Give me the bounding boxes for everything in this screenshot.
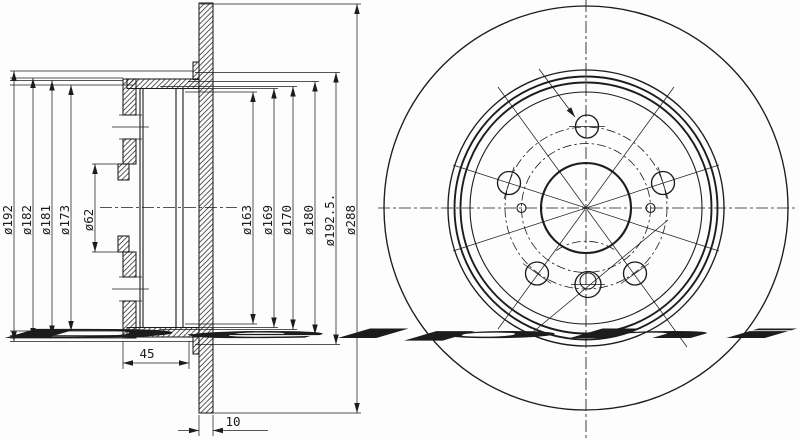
dim-label-170: ø170 — [279, 205, 294, 235]
hub-wall-segment — [123, 252, 136, 277]
bottom-shoulder-section — [193, 337, 199, 355]
dim-label-182: ø182 — [19, 205, 34, 235]
dim-label-192: ø192 — [0, 205, 15, 235]
dim-label-181: ø181 — [38, 205, 53, 235]
top-shoulder-section — [193, 62, 199, 80]
pilot-ring-top-section — [118, 164, 129, 180]
dim-label-288: ø288 — [343, 205, 358, 235]
hat-bottom-face-section — [127, 328, 199, 338]
dim-label-169: ø169 — [260, 205, 275, 235]
drawing-svg: Delphi — [0, 0, 799, 440]
dim-label-192-5: ø192.5. — [322, 194, 337, 247]
pilot-ring-bottom-section — [118, 236, 129, 252]
delphi-watermark: Delphi — [0, 326, 799, 341]
hub-wall-segment — [123, 139, 136, 164]
paper-background — [0, 0, 799, 440]
dim-label-10: 10 — [225, 414, 240, 429]
brake-disc-technical-drawing: Delphi — [0, 0, 799, 440]
dim-label-173: ø173 — [57, 205, 72, 235]
dim-label-163: ø163 — [239, 205, 254, 235]
hat-top-face-section — [127, 79, 199, 89]
dim-label-180: ø180 — [301, 205, 316, 235]
hub-wall-segment — [123, 301, 136, 338]
rotor-plate-section — [199, 3, 213, 413]
dim-label-45: 45 — [139, 346, 154, 361]
dim-label-62: ø62 — [81, 209, 96, 232]
hub-wall-segment — [123, 79, 136, 115]
